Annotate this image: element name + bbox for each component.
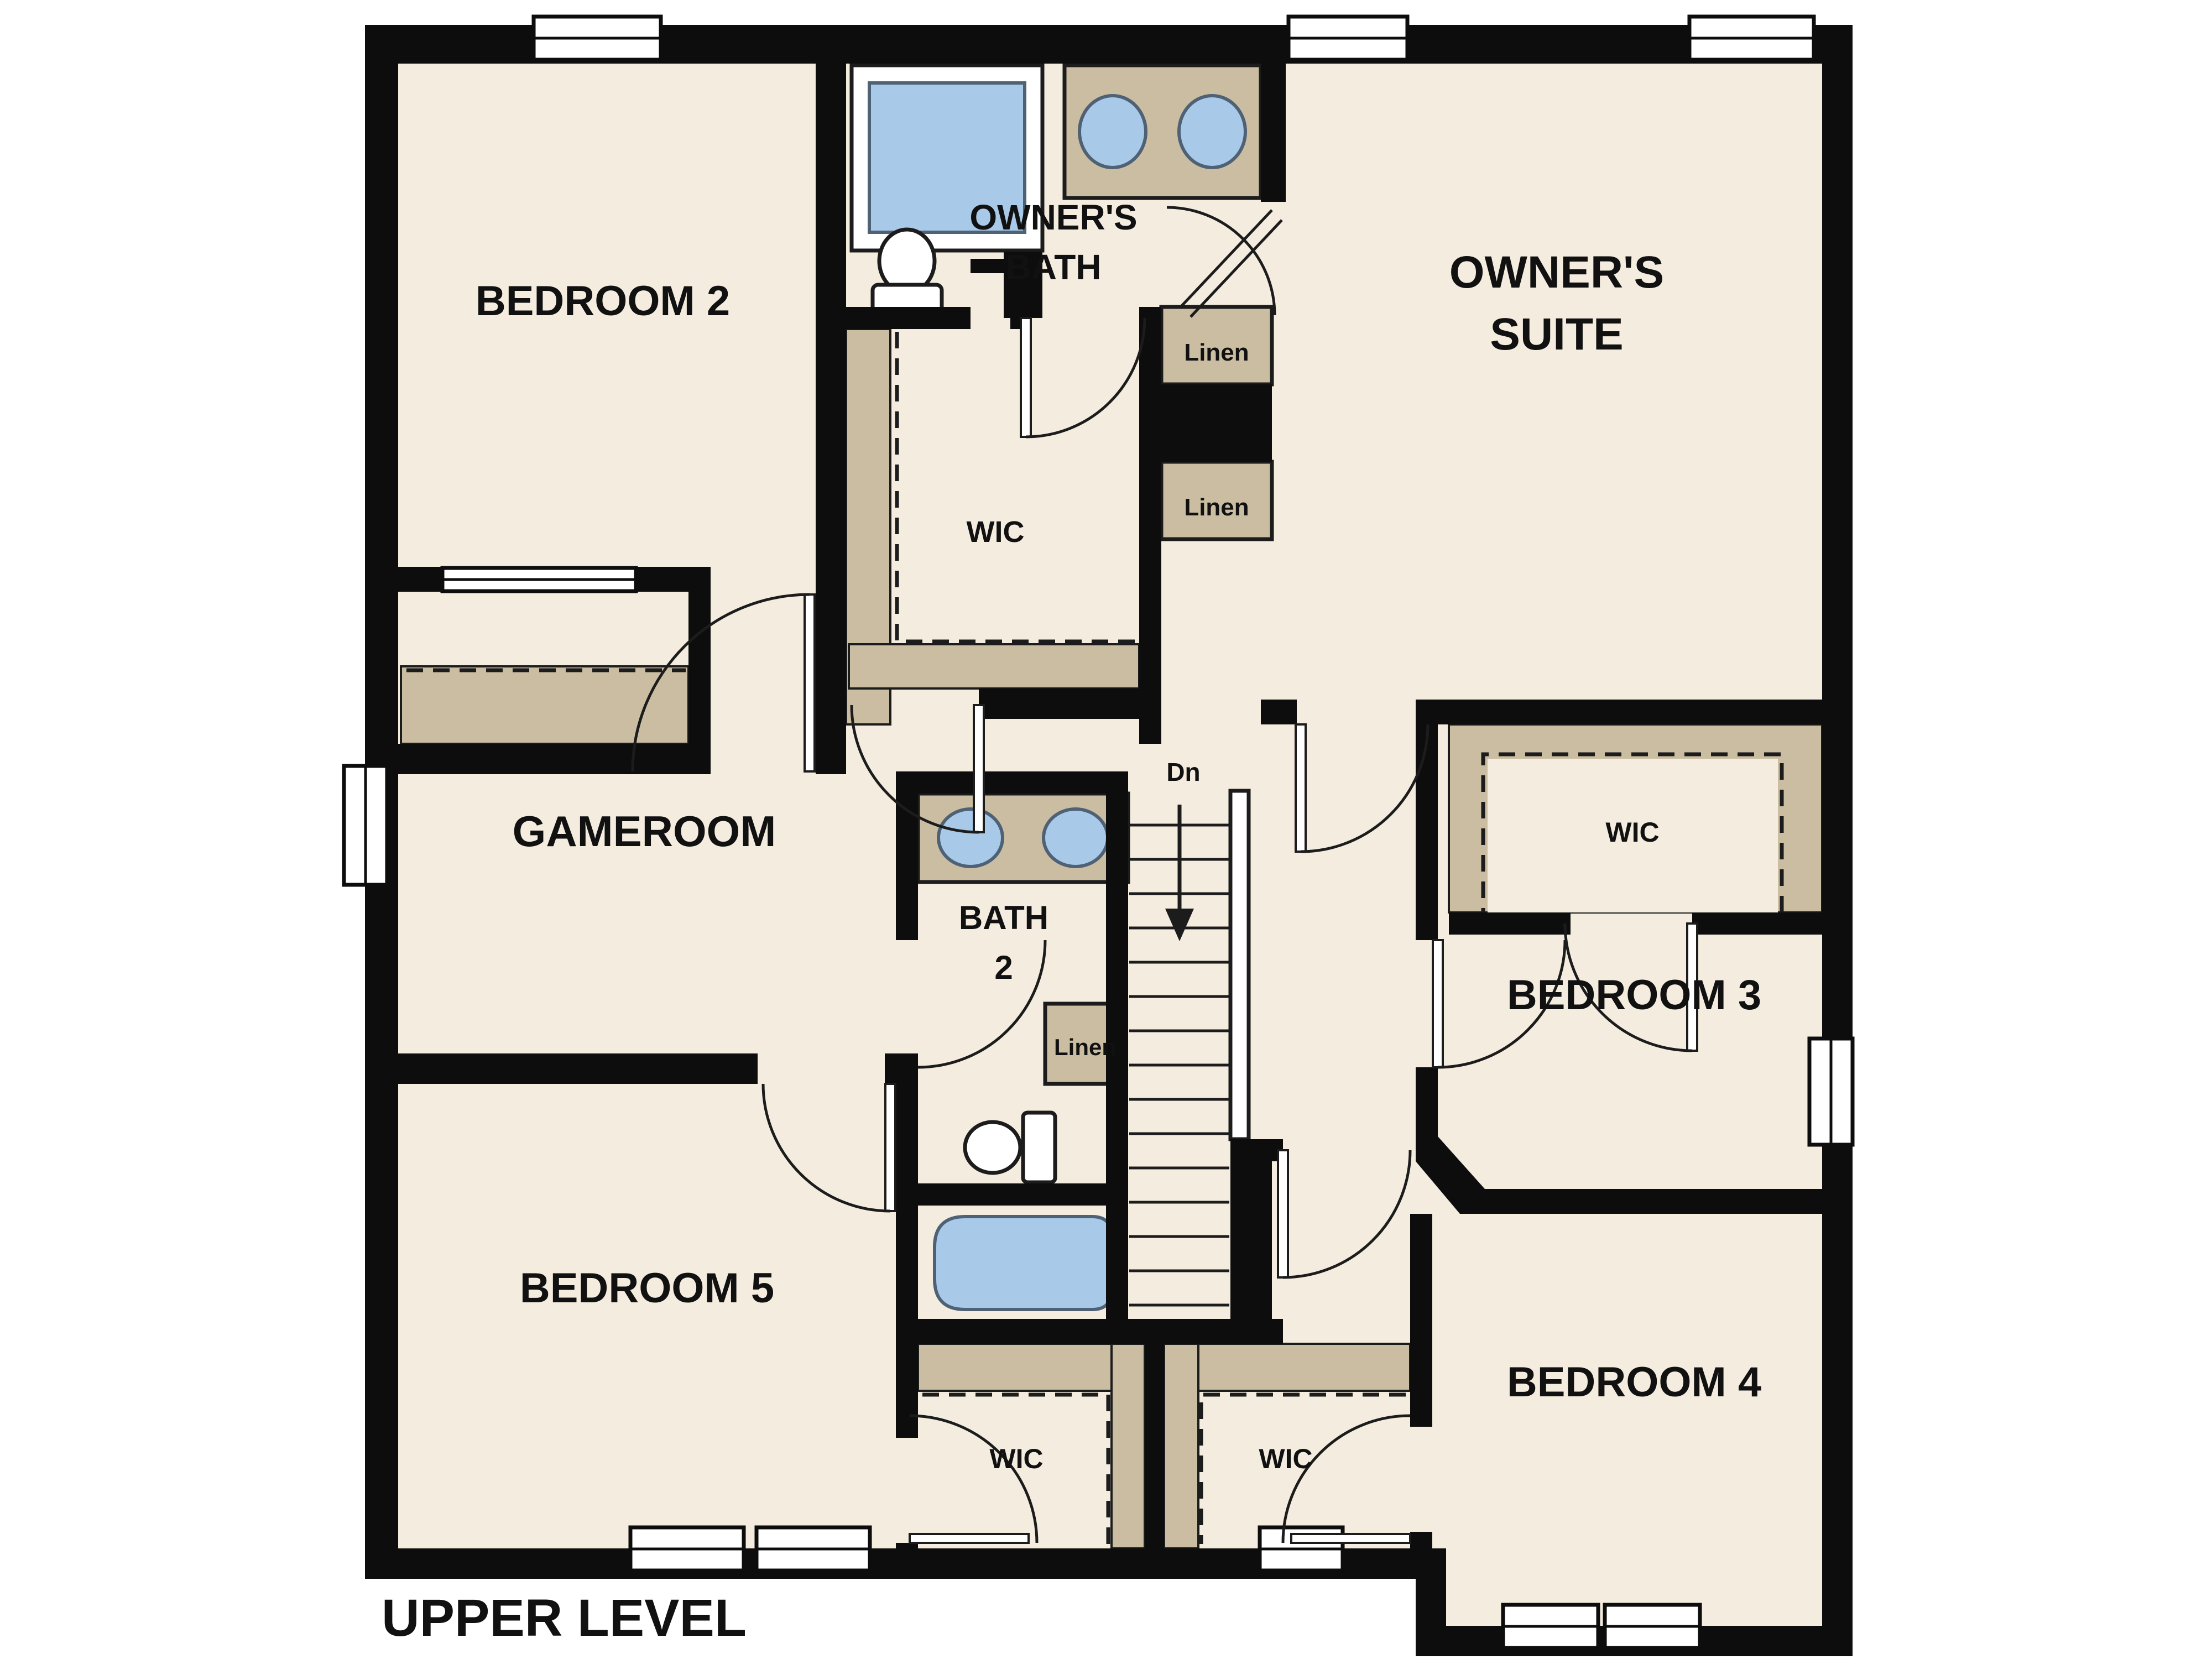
level-title: UPPER LEVEL [382, 1589, 747, 1647]
wall-toilet-divider [846, 307, 971, 329]
window-icon [630, 1527, 744, 1571]
wall-wic5-left-stub [896, 1543, 918, 1579]
window-icon [344, 766, 387, 885]
wall-wic-bedroom4-upper [1410, 1214, 1432, 1427]
closet-label-bedroom5-wic: WIC [989, 1443, 1043, 1474]
wall-bedroom3-wic-bottom-right [1692, 912, 1822, 935]
room-label-bedroom5: BEDROOM 5 [520, 1265, 774, 1312]
wall-stairs-right [1230, 1139, 1272, 1322]
room-label-owners-suite-2: SUITE [1490, 309, 1623, 359]
wall-bath2-left-upper [896, 771, 918, 940]
room-label-owners-suite-1: OWNER'S [1449, 247, 1665, 298]
sink-icon [1079, 96, 1146, 168]
toilet-tank-icon [1023, 1113, 1055, 1182]
wall-tub-divider [896, 1183, 1128, 1206]
closet-label-bedroom4-wic: WIC [1259, 1443, 1312, 1474]
room-label-bedroom4: BEDROOM 4 [1507, 1359, 1761, 1406]
toilet-icon [965, 1122, 1020, 1173]
room-label-bath2-1: BATH [959, 899, 1048, 936]
room-label-bath2-2: 2 [994, 949, 1013, 986]
wall-bedroom3-wic-bottom-left [1449, 912, 1571, 935]
wall-bedroom2-bottom [365, 744, 711, 774]
wall-closet-stub-right [636, 567, 688, 592]
room-label-owners-bath-1: OWNER'S [969, 197, 1137, 237]
wall-closet-stub-left [398, 567, 445, 592]
window-icon [757, 1527, 870, 1571]
room-label-gameroom: GAMEROOM [513, 807, 776, 855]
window-icon [1689, 17, 1814, 60]
bedroom2-closet-track [442, 568, 636, 591]
closet-label-linen-bath2: Linen [1054, 1034, 1116, 1060]
wall-wic-bedroom4-lower [1410, 1532, 1432, 1579]
stairs-dn-label: Dn [1166, 758, 1200, 786]
closet-label-linen-lower: Linen [1184, 494, 1249, 521]
wall-wic-top-band [896, 1319, 1283, 1344]
bathtub-icon [935, 1217, 1112, 1310]
wall-owners-wic-right [1139, 307, 1161, 744]
wall-wic-divider [1145, 1319, 1164, 1548]
closet-label-linen-upper: Linen [1184, 339, 1249, 366]
wall-linen-chase [1161, 384, 1272, 462]
wall-bath2-left-lower [896, 1067, 918, 1438]
window-icon [1288, 17, 1407, 60]
wall-bedroom5-stub [885, 1053, 918, 1084]
sink-icon [1044, 809, 1108, 867]
floor-plan: BEDROOM 2 OWNER'S BATH OWNER'S SUITE GAM… [0, 0, 2212, 1659]
wall-owners-wic-bottom [979, 688, 1161, 719]
room-label-bedroom2: BEDROOM 2 [476, 278, 730, 325]
wall-suite-bottom [1427, 700, 1853, 724]
closet-label-owners-wic: WIC [967, 515, 1025, 549]
owners-wic-shelf-bottom [849, 644, 1139, 688]
sink-icon [938, 809, 1003, 867]
wall-bedroom2-bath [816, 64, 846, 774]
window-icon [1809, 1039, 1853, 1145]
room-label-owners-bath-2: BATH [1006, 247, 1102, 287]
closet-label-bedroom3-wic: WIC [1605, 817, 1659, 848]
wall-bedroom3-bottom [1460, 1189, 1853, 1214]
window-icon [1605, 1605, 1700, 1648]
wall-hall-bedroom3-lower [1416, 1067, 1438, 1139]
sink-icon [1179, 96, 1245, 168]
room-label-bedroom3: BEDROOM 3 [1507, 972, 1761, 1019]
wall-suite-bottom-stub [1261, 700, 1297, 724]
wall-closet-right [688, 567, 711, 774]
window-icon [1503, 1605, 1598, 1648]
bedroom4-wic-shelf-top [1164, 1344, 1410, 1391]
exterior-wall-right [1822, 25, 1853, 1656]
wall-gameroom-bedroom5 [365, 1053, 758, 1084]
wall-suite-upper [1261, 64, 1286, 202]
window-icon [534, 17, 661, 60]
stair-railing [1230, 791, 1249, 1139]
wall-bath2-top [918, 771, 1128, 794]
bedroom5-wic-shelf-right [1112, 1344, 1145, 1548]
bedroom4-wic-shelf-left [1164, 1344, 1198, 1548]
